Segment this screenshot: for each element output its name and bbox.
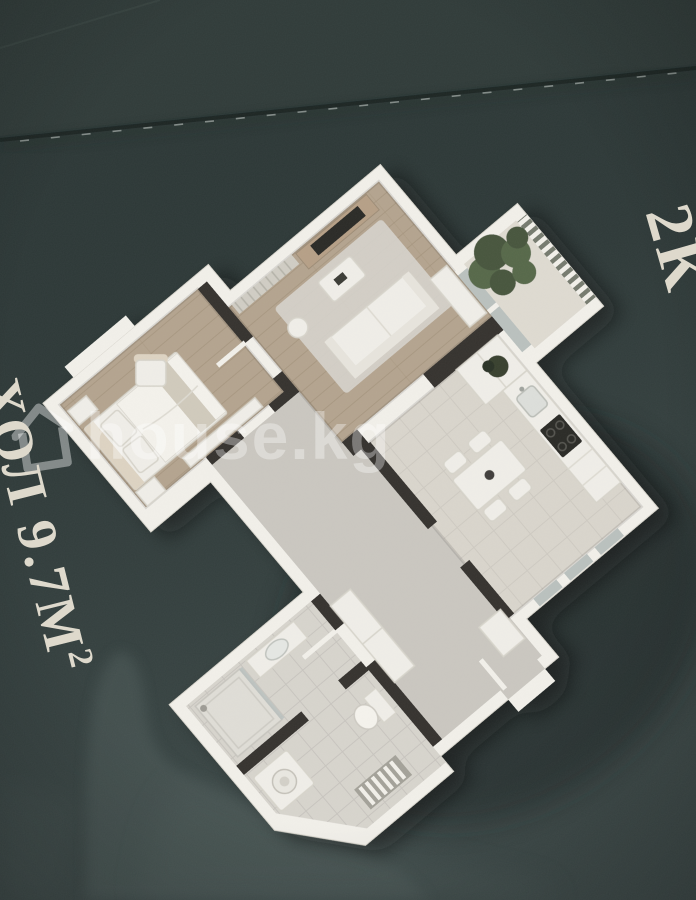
floor-plan-scene: [0, 0, 696, 900]
brochure-page-photo: house.kg ХОЛ 9.7М2 2К: [0, 0, 696, 900]
photo-grain: [0, 0, 696, 900]
